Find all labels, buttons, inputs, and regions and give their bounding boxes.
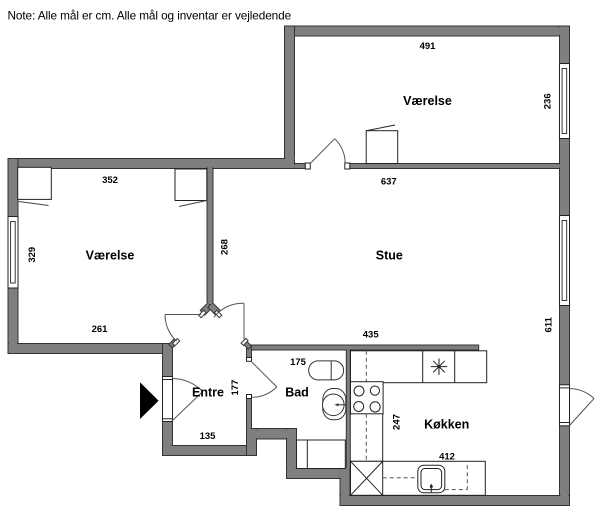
svg-text:412: 412 bbox=[439, 452, 455, 463]
svg-text:Værelse: Værelse bbox=[86, 249, 135, 263]
svg-text:236: 236 bbox=[543, 93, 554, 109]
svg-text:175: 175 bbox=[290, 357, 307, 368]
svg-text:Værelse: Værelse bbox=[403, 94, 452, 108]
svg-text:352: 352 bbox=[102, 175, 118, 186]
svg-text:268: 268 bbox=[220, 239, 231, 255]
svg-text:Entre: Entre bbox=[192, 386, 224, 400]
svg-text:177: 177 bbox=[230, 380, 241, 396]
svg-text:135: 135 bbox=[200, 431, 217, 442]
svg-text:637: 637 bbox=[381, 177, 397, 188]
svg-text:491: 491 bbox=[420, 41, 437, 52]
svg-text:Køkken: Køkken bbox=[424, 418, 469, 432]
svg-text:Stue: Stue bbox=[376, 249, 403, 263]
svg-text:435: 435 bbox=[363, 330, 380, 341]
svg-text:261: 261 bbox=[92, 324, 109, 335]
svg-text:247: 247 bbox=[392, 414, 403, 430]
svg-text:Bad: Bad bbox=[285, 386, 309, 400]
svg-text:Note: Alle mål er cm. Alle mål: Note: Alle mål er cm. Alle mål og invent… bbox=[8, 9, 292, 23]
svg-text:329: 329 bbox=[27, 247, 38, 263]
svg-text:611: 611 bbox=[543, 316, 554, 332]
